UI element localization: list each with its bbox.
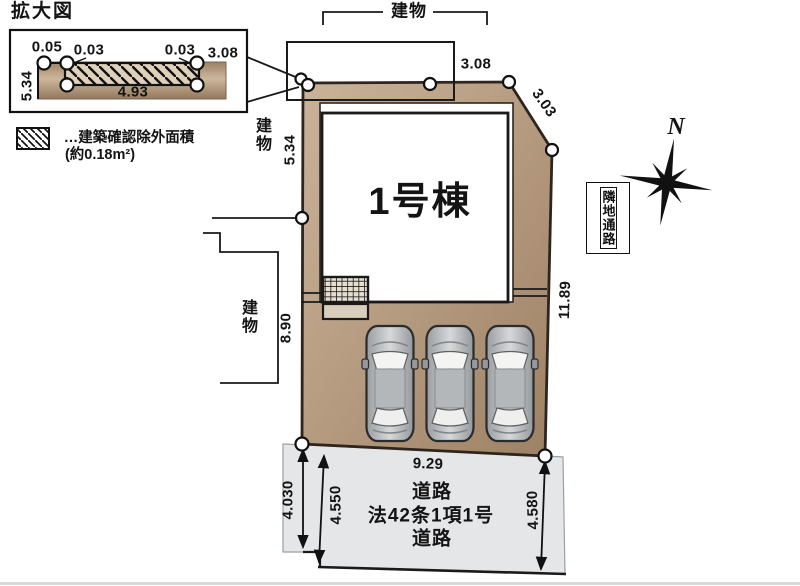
porch-step [323, 304, 368, 319]
neighbor-lower-left-label: 建物 [239, 299, 255, 335]
excluded-area-hatch [65, 63, 199, 85]
page-bottom-edge [0, 582, 800, 585]
inset-title: 拡大図 [11, 2, 74, 21]
neighbor-upper-left-label: 建物 [253, 117, 269, 153]
dim-left-890: 8.90 [279, 313, 294, 343]
car-icon [422, 326, 478, 441]
road-dim-4580: 4.580 [525, 490, 541, 530]
adjacent-passage-inner-border: 隣地通路 [600, 187, 617, 249]
inset-dim-493: 4.93 [118, 85, 148, 100]
adjacent-passage-label: 隣地通路 [602, 190, 615, 246]
dim-bottom-929: 9.29 [413, 456, 444, 472]
inset-dim-534: 5.34 [20, 71, 35, 101]
dim-left-534: 5.34 [283, 135, 298, 165]
dim-right-1189: 11.89 [557, 281, 573, 320]
road-label-line3: 道路 [412, 530, 452, 549]
inset-dim-003a: 0.03 [74, 43, 104, 58]
road-dim-4030: 4.030 [281, 480, 296, 519]
inset-dim-308: 3.08 [208, 46, 238, 61]
road-label-line1: 道路 [412, 483, 452, 502]
building-name: 1号棟 [368, 183, 471, 221]
north-label: N [667, 115, 684, 139]
road-dim-4550: 4.550 [328, 485, 344, 524]
inset-dim-003b: 0.03 [165, 43, 195, 58]
legend-area: (約0.18m²) [65, 148, 135, 163]
inset-dim-005: 0.05 [32, 40, 62, 55]
site-plan-page: 拡大図 0.05 0.03 0.03 3.08 5.34 4.93 …建築確認除… [0, 0, 800, 586]
road-label-line2: 法42条1項1号 [368, 507, 494, 526]
car-icon [362, 326, 418, 441]
parked-cars [362, 326, 538, 441]
legend-label: …建築確認除外面積 [64, 131, 195, 146]
neighbor-top-label: 建物 [391, 3, 427, 20]
dim-top-308: 3.08 [461, 57, 491, 72]
adjacent-passage-box: 隣地通路 [586, 182, 630, 254]
porch-grid [323, 277, 368, 302]
car-icon [482, 326, 538, 441]
